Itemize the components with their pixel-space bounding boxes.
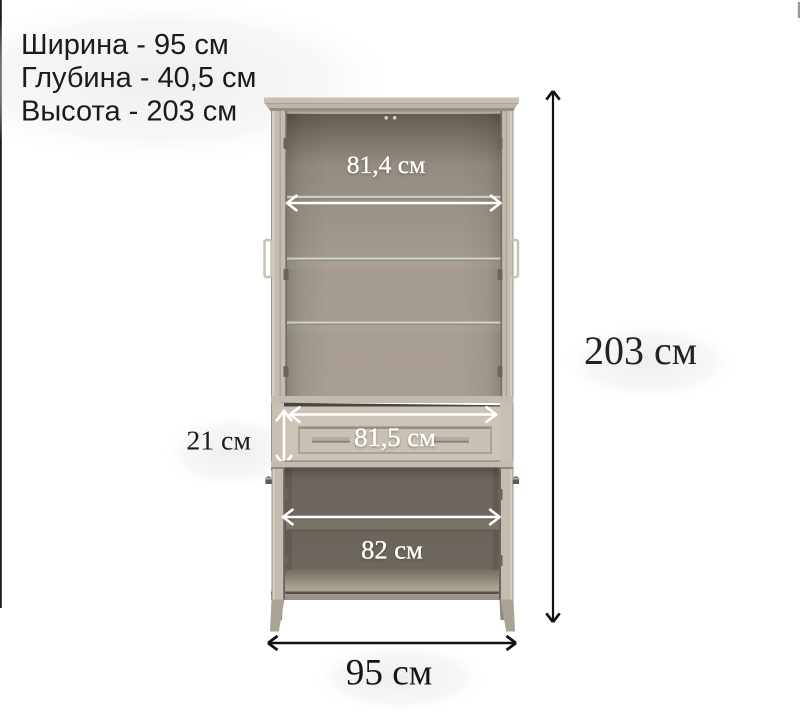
svg-text:81,4 см: 81,4 см: [347, 150, 425, 179]
svg-text:21 см: 21 см: [186, 425, 251, 456]
svg-text:203 см: 203 см: [584, 328, 697, 373]
svg-text:95 см: 95 см: [346, 653, 433, 694]
svg-text:Ширина - 95 см: Ширина - 95 см: [21, 29, 229, 61]
svg-text:81,5 см: 81,5 см: [354, 422, 436, 452]
svg-text:Высота - 203 см: Высота - 203 см: [21, 96, 237, 128]
svg-text:Глубина - 40,5 см: Глубина - 40,5 см: [21, 62, 256, 94]
svg-text:82 см: 82 см: [361, 535, 423, 565]
